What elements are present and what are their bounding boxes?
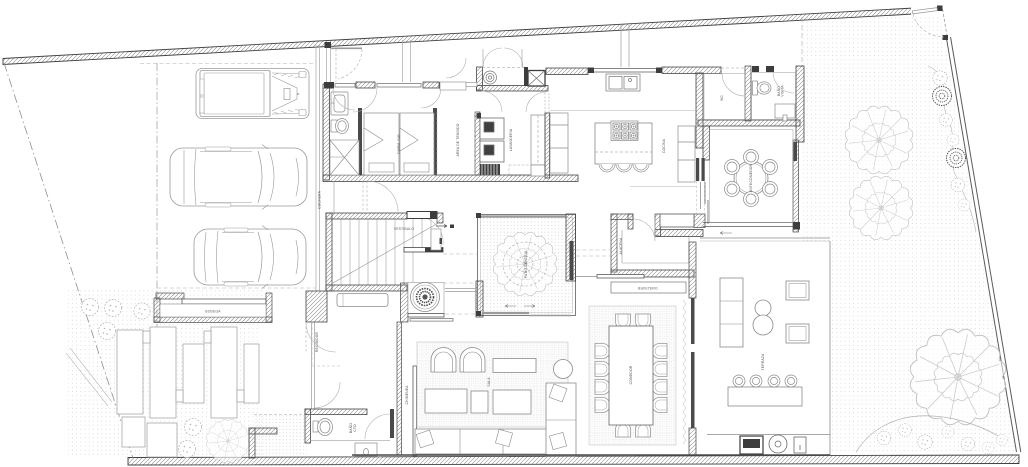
svg-text:TERRAZA: TERRAZA — [761, 353, 765, 370]
svg-text:CHIMENEA: CHIMENEA — [405, 385, 409, 405]
svg-text:VESTIBULO: VESTIBULO — [394, 227, 415, 231]
svg-text:SALA: SALA — [487, 377, 491, 387]
svg-text:ANTECOMEDOR: ANTECOMEDOR — [749, 163, 753, 192]
svg-text:COMEDOR: COMEDOR — [629, 365, 633, 384]
svg-text:AREA DE TENDIDO: AREA DE TENDIDO — [456, 123, 460, 156]
svg-text:CTO: CTO — [353, 424, 357, 432]
svg-text:RECIBIDOR: RECIBIDOR — [315, 332, 319, 353]
svg-text:COCHERA: COCHERA — [318, 190, 322, 209]
svg-text:WC: WC — [720, 95, 724, 101]
svg-text:LAVANDERIA: LAVANDERIA — [509, 128, 513, 151]
svg-text:ALACENA: ALACENA — [619, 237, 623, 254]
svg-text:COCINA: COCINA — [662, 138, 666, 153]
svg-text:DORM. S/O: DORM. S/O — [397, 134, 401, 154]
svg-text:BODEGA: BODEGA — [205, 310, 221, 314]
svg-text:BUFETERO: BUFETERO — [638, 287, 658, 291]
svg-text:PATIO CENTRAL: PATIO CENTRAL — [524, 250, 528, 278]
